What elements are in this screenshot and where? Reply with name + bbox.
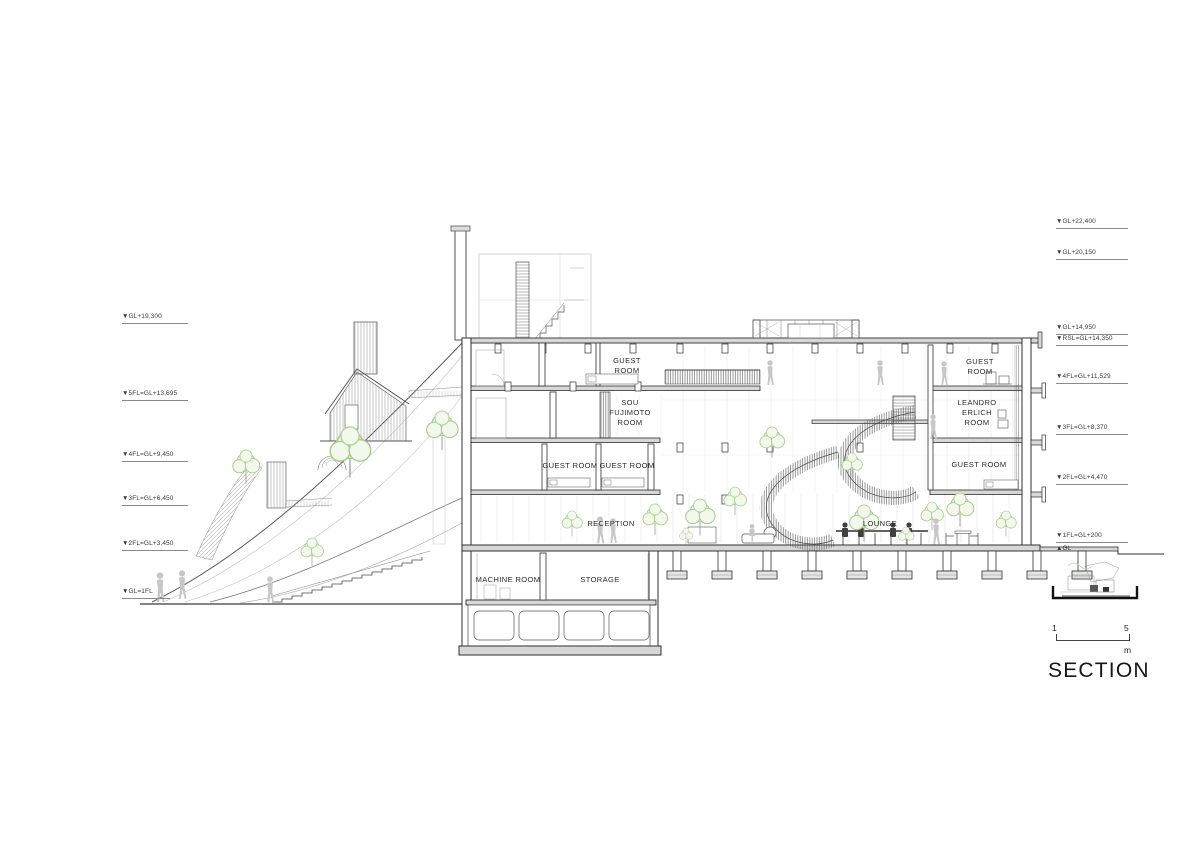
level-marker-left: ▼2FL=GL+3,450 [122,541,188,551]
key-plan-sketch [1053,562,1137,598]
level-label: ▼1FL=GL+200 [1056,532,1102,539]
room-label-guest-right-lower: GUEST ROOM [951,460,1006,470]
level-marker-left: ▼3FL=GL+6,450 [122,496,188,506]
room-label-sou-fujimoto: SOU FUJIMOTO ROOM [605,398,655,427]
level-label: ▼GL+14,950 [1056,324,1096,331]
room-label-leandro-erlich: LEANDRO ERLICH ROOM [954,398,1000,427]
level-marker-right: ▼4FL=GL+11,529 [1056,374,1128,384]
basement-foundation [459,551,1092,655]
roof-stair-tower [451,226,591,340]
level-label: ▼4FL=GL+11,529 [1056,373,1111,380]
room-label-storage: STORAGE [580,575,619,585]
level-label: ▼GL+19,300 [122,313,162,320]
level-marker-right: ▼3FL=GL+8,370 [1056,425,1128,435]
level-label: ▼GL+20,150 [1056,249,1096,256]
level-label: ▼RSL=GL+14,350 [1056,335,1113,342]
level-label: ▼3FL=GL+6,450 [122,495,173,502]
level-label: ▲GL [1056,545,1071,552]
level-marker-left: ▼GL+19,300 [122,314,188,324]
room-label-guest-right-top: GUEST ROOM [962,357,998,377]
level-marker-right: ▼GL+22,400 [1056,219,1128,229]
drawing-title: SECTION [1048,660,1150,681]
level-label: ▼4FL=GL+9,450 [122,451,173,458]
scale-bracket [1056,634,1130,641]
level-marker-right: ▼2FL=GL+4,470 [1056,475,1128,485]
scale-start: 1 [1052,624,1057,633]
room-label-guest-3f-left: GUEST ROOM [542,461,597,471]
level-marker-right: ▼GL+20,150 [1056,250,1128,260]
level-marker-left: ▼5FL=GL+13,695 [122,391,188,401]
hill-landscape [140,322,466,604]
room-label-guest-3f-right: GUEST ROOM [599,461,654,471]
level-marker-right: ▼RSL=GL+14,350 [1056,336,1128,346]
level-label: ▼2FL=GL+4,470 [1056,474,1107,481]
room-label-machine-room: MACHINE ROOM [476,575,541,585]
room-label-guest-room-top: GUEST ROOM [609,356,645,376]
section-linework [0,0,1200,848]
room-label-reception: RECEPTION [587,519,634,529]
scale-end: 5 [1124,624,1129,633]
level-label: ▼3FL=GL+8,370 [1056,424,1107,431]
level-marker-left: ▼4FL=GL+9,450 [122,452,188,462]
level-marker-right: ▼1FL=GL+200 [1056,533,1128,543]
level-marker-left: ▼GL=1FL [122,589,170,599]
level-marker-right: ▼GL+14,950 [1056,325,1128,335]
level-label: ▼5FL=GL+13,695 [122,390,177,397]
scale-unit: m [1124,646,1131,655]
level-label: ▼2FL=GL+3,450 [122,540,173,547]
level-marker-gl: ▲GL [1056,546,1071,555]
level-label: ▼GL=1FL [122,588,153,595]
rooftop-skylight [753,320,859,338]
section-drawing-canvas: ▼GL+19,300 ▼5FL=GL+13,695 ▼4FL=GL+9,450 … [0,0,1200,848]
room-label-lounge: LOUNGE [863,519,897,529]
level-label: ▼GL+22,400 [1056,218,1096,225]
